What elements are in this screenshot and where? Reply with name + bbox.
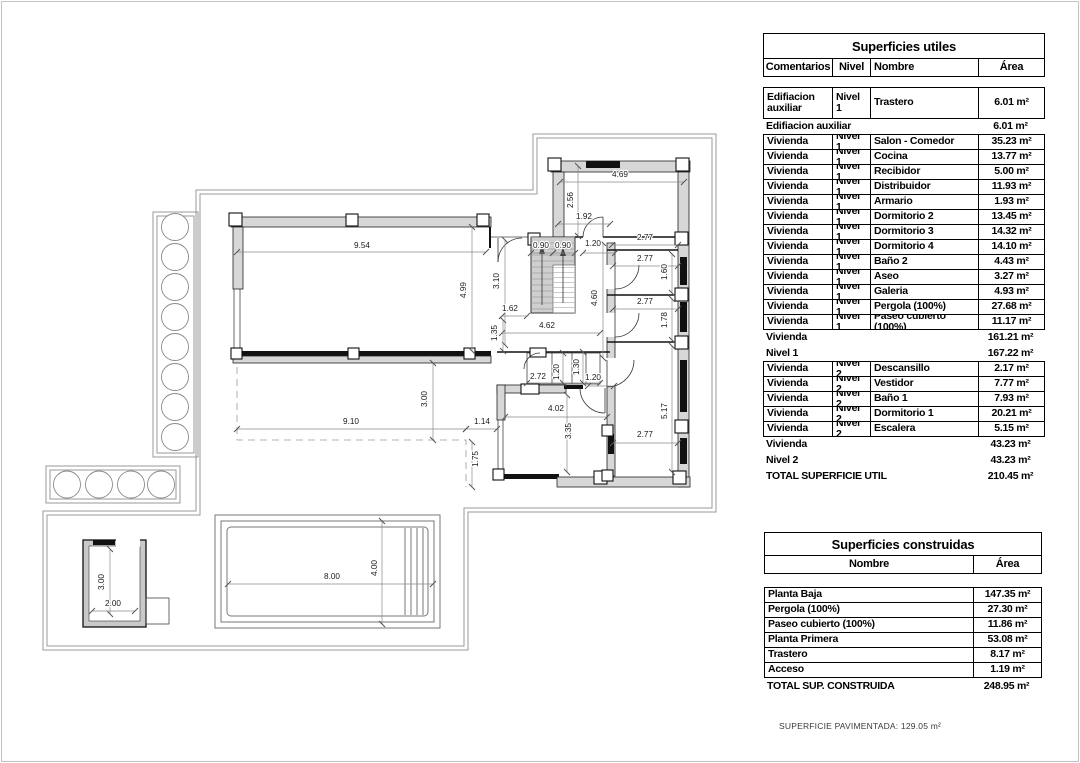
table-row: ViviendaNivel 1Baño 24.43 m² xyxy=(763,254,1045,270)
cell-nivel: Nivel 2 xyxy=(833,392,871,406)
cell-area: 13.77 m² xyxy=(979,150,1044,164)
cell-area: 53.08 m² xyxy=(974,633,1041,647)
dimension-label: 4.60 xyxy=(590,290,599,306)
cell-nombre: Salon - Comedor xyxy=(871,135,979,149)
cell-nombre: Pergola (100%) xyxy=(765,603,974,617)
table-row: TOTAL SUP. CONSTRUIDA248.95 m² xyxy=(764,678,1042,695)
cell-nombre: Dormitorio 3 xyxy=(871,225,979,239)
subtotal-label: Nivel 2 xyxy=(763,453,978,469)
table-row: ViviendaNivel 2Baño 17.93 m² xyxy=(763,391,1045,407)
cell-nivel: Nivel 1 xyxy=(833,150,871,164)
cell-area: 6.01 m² xyxy=(979,88,1044,118)
column-header: Nivel xyxy=(833,59,871,76)
table-row: ViviendaNivel 1Armario1.93 m² xyxy=(763,194,1045,210)
dimension-label: 2.77 xyxy=(637,233,653,242)
cell-nivel: Nivel 1 xyxy=(833,88,871,118)
superficies-utiles-table: Superficies utiles ComentariosNivelNombr… xyxy=(763,33,1045,485)
dimension-label: 4.02 xyxy=(548,404,564,413)
cell-comentarios: Vivienda xyxy=(764,377,833,391)
cell-nombre: Trastero xyxy=(871,88,979,118)
cell-area: 7.77 m² xyxy=(979,377,1044,391)
dimension-label: 2.56 xyxy=(566,192,575,208)
dimension-label: 1.14 xyxy=(474,417,490,426)
table-row: Nivel 1167.22 m² xyxy=(763,346,1045,362)
dimension-label: 0.90 xyxy=(555,241,571,250)
cell-area: 1.93 m² xyxy=(979,195,1044,209)
tree-row-south xyxy=(46,466,180,503)
dimension-label: 5.17 xyxy=(660,403,669,419)
cell-comentarios: Vivienda xyxy=(764,407,833,421)
table-row: ViviendaNivel 1Dormitorio 314.32 m² xyxy=(763,224,1045,240)
table-row: Paseo cubierto (100%)11.86 m² xyxy=(764,617,1042,633)
dimension-label: 1.62 xyxy=(502,304,518,313)
cell-nombre: Galeria xyxy=(871,285,979,299)
dimension-label: 3.00 xyxy=(97,574,106,590)
table-row: Edifiacion auxiliar6.01 m² xyxy=(763,119,1045,135)
cell-comentarios: Vivienda xyxy=(764,240,833,254)
table-row: ViviendaNivel 1Distribuidor11.93 m² xyxy=(763,179,1045,195)
table-row: ViviendaNivel 1Cocina13.77 m² xyxy=(763,149,1045,165)
table-row: ViviendaNivel 1Dormitorio 414.10 m² xyxy=(763,239,1045,255)
cell-area: 35.23 m² xyxy=(979,135,1044,149)
subtotal-area: 6.01 m² xyxy=(978,119,1043,135)
cell-nivel: Nivel 1 xyxy=(833,195,871,209)
subtotal-area: 43.23 m² xyxy=(978,453,1043,469)
table-row: Edifiacion auxiliarNivel 1Trastero6.01 m… xyxy=(763,87,1045,119)
dimension-label: 1.20 xyxy=(585,373,601,382)
table-row: ViviendaNivel 2Dormitorio 120.21 m² xyxy=(763,406,1045,422)
cell-comentarios: Vivienda xyxy=(764,150,833,164)
cell-area: 1.19 m² xyxy=(974,663,1041,677)
cell-nombre: Cocina xyxy=(871,150,979,164)
cell-comentarios: Vivienda xyxy=(764,315,833,329)
cell-comentarios: Vivienda xyxy=(764,270,833,284)
subtotal-area: 248.95 m² xyxy=(973,678,1040,695)
dimension-label: 2.77 xyxy=(637,430,653,439)
subtotal-label: TOTAL SUP. CONSTRUIDA xyxy=(764,678,973,695)
dimension-label: 4.69 xyxy=(612,170,628,179)
cell-area: 27.30 m² xyxy=(974,603,1041,617)
outbuilding xyxy=(83,539,169,627)
cell-nombre: Recibidor xyxy=(871,165,979,179)
cell-comentarios: Vivienda xyxy=(764,362,833,376)
cell-comentarios: Vivienda xyxy=(764,165,833,179)
cell-area: 4.43 m² xyxy=(979,255,1044,269)
table-row: ViviendaNivel 1Recibidor5.00 m² xyxy=(763,164,1045,180)
cell-area: 5.15 m² xyxy=(979,422,1044,436)
dimension-label: 1.75 xyxy=(471,451,480,467)
table-row: Acceso1.19 m² xyxy=(764,662,1042,678)
subtotal-area: 167.22 m² xyxy=(978,346,1043,362)
cell-comentarios: Vivienda xyxy=(764,392,833,406)
subtotal-label: Edifiacion auxiliar xyxy=(763,119,978,135)
cell-comentarios: Vivienda xyxy=(764,255,833,269)
cell-area: 4.93 m² xyxy=(979,285,1044,299)
cell-nombre: Descansillo xyxy=(871,362,979,376)
cell-nivel: Nivel 1 xyxy=(833,225,871,239)
column-header: Nombre xyxy=(765,556,974,573)
cell-area: 14.32 m² xyxy=(979,225,1044,239)
cell-comentarios: Vivienda xyxy=(764,180,833,194)
table-row: ViviendaNivel 1Galeria4.93 m² xyxy=(763,284,1045,300)
dimension-label: 0.90 xyxy=(533,241,549,250)
cell-nivel: Nivel 1 xyxy=(833,255,871,269)
cell-area: 11.86 m² xyxy=(974,618,1041,632)
cell-nivel: Nivel 2 xyxy=(833,377,871,391)
dimension-label: 3.00 xyxy=(420,391,429,407)
cell-nivel: Nivel 1 xyxy=(833,315,871,329)
table-row: Vivienda161.21 m² xyxy=(763,330,1045,346)
column-header: Área xyxy=(979,59,1044,76)
cell-nivel: Nivel 1 xyxy=(833,270,871,284)
cell-nombre: Aseo xyxy=(871,270,979,284)
cell-nivel: Nivel 1 xyxy=(833,180,871,194)
table-row: Vivienda43.23 m² xyxy=(763,437,1045,453)
dimension-label: 2.77 xyxy=(637,254,653,263)
dimension-label: 4.99 xyxy=(459,282,468,298)
dimension-label: 8.00 xyxy=(324,572,340,581)
dimension-label: 4.00 xyxy=(370,560,379,576)
dimension-label: 2.72 xyxy=(530,372,546,381)
dimension-label: 1.78 xyxy=(660,312,669,328)
cell-nombre: Trastero xyxy=(765,648,974,662)
cell-nombre: Distribuidor xyxy=(871,180,979,194)
cell-area: 8.17 m² xyxy=(974,648,1041,662)
table-row: Trastero8.17 m² xyxy=(764,647,1042,663)
table-row: ViviendaNivel 1Aseo3.27 m² xyxy=(763,269,1045,285)
table-row: ViviendaNivel 1Paseo cubierto (100%)11.1… xyxy=(763,314,1045,330)
dimension-label: 3.35 xyxy=(564,423,573,439)
cell-comentarios: Vivienda xyxy=(764,135,833,149)
subtotal-label: Vivienda xyxy=(763,330,978,346)
cell-nombre: Vestidor xyxy=(871,377,979,391)
cell-nombre: Baño 2 xyxy=(871,255,979,269)
cell-nombre: Dormitorio 4 xyxy=(871,240,979,254)
drawing-sheet: 9.544.993.104.692.561.920.900.901.202.77… xyxy=(0,0,1080,763)
subtotal-label: Nivel 1 xyxy=(763,346,978,362)
table-row: ViviendaNivel 1Pergola (100%)27.68 m² xyxy=(763,299,1045,315)
superficies-construidas-header: NombreÁrea xyxy=(764,555,1042,574)
cell-nombre: Planta Baja xyxy=(765,588,974,602)
cell-nivel: Nivel 1 xyxy=(833,300,871,314)
cell-nombre: Escalera xyxy=(871,422,979,436)
cell-area: 14.10 m² xyxy=(979,240,1044,254)
cell-nivel: Nivel 1 xyxy=(833,240,871,254)
cell-nombre: Acceso xyxy=(765,663,974,677)
superficies-utiles-header: ComentariosNivelNombreÁrea xyxy=(763,58,1045,77)
house-walls xyxy=(229,158,690,487)
cell-comentarios: Vivienda xyxy=(764,422,833,436)
cell-nombre: Paseo cubierto (100%) xyxy=(871,315,979,329)
dimension-label: 3.10 xyxy=(492,273,501,289)
dimension-label: 2.77 xyxy=(637,297,653,306)
table-row: ViviendaNivel 2Descansillo2.17 m² xyxy=(763,361,1045,377)
subtotal-label: Vivienda xyxy=(763,437,978,453)
cell-nivel: Nivel 1 xyxy=(833,135,871,149)
cell-area: 13.45 m² xyxy=(979,210,1044,224)
superficies-construidas-table: Superficies construidas NombreÁrea Plant… xyxy=(764,532,1042,695)
cell-comentarios: Vivienda xyxy=(764,195,833,209)
dimension-label: 1.35 xyxy=(490,325,499,341)
dimension-label: 9.54 xyxy=(354,241,370,250)
superficies-construidas-title: Superficies construidas xyxy=(764,532,1042,556)
superficies-construidas-rows: Planta Baja147.35 m²Pergola (100%)27.30 … xyxy=(764,587,1042,695)
cell-comentarios: Vivienda xyxy=(764,210,833,224)
dimension-label: 1.30 xyxy=(572,359,581,375)
subtotal-label: TOTAL SUPERFICIE UTIL xyxy=(763,469,978,485)
cell-area: 11.93 m² xyxy=(979,180,1044,194)
table-row: ViviendaNivel 2Vestidor7.77 m² xyxy=(763,376,1045,392)
cell-area: 7.93 m² xyxy=(979,392,1044,406)
subtotal-area: 161.21 m² xyxy=(978,330,1043,346)
table-row: ViviendaNivel 1Dormitorio 213.45 m² xyxy=(763,209,1045,225)
cell-area: 20.21 m² xyxy=(979,407,1044,421)
cell-nombre: Armario xyxy=(871,195,979,209)
dimension-label: 2.00 xyxy=(105,599,121,608)
pergola-dashed-outline xyxy=(237,367,466,487)
table-row: Pergola (100%)27.30 m² xyxy=(764,602,1042,618)
cell-nombre: Pergola (100%) xyxy=(871,300,979,314)
tree-row-west xyxy=(153,212,198,457)
cell-nombre: Baño 1 xyxy=(871,392,979,406)
column-header: Área xyxy=(974,556,1041,573)
dimension-label: 4.62 xyxy=(539,321,555,330)
dimension-label: 1.20 xyxy=(552,364,561,380)
cell-area: 27.68 m² xyxy=(979,300,1044,314)
cell-area: 3.27 m² xyxy=(979,270,1044,284)
cell-nivel: Nivel 2 xyxy=(833,407,871,421)
floor-plan-drawing: 9.544.993.104.692.561.920.900.901.202.77… xyxy=(0,0,755,763)
cell-nivel: Nivel 1 xyxy=(833,165,871,179)
cell-area: 11.17 m² xyxy=(979,315,1044,329)
cell-comentarios: Edifiacion auxiliar xyxy=(764,88,833,118)
cell-nivel: Nivel 2 xyxy=(833,422,871,436)
cell-nivel: Nivel 1 xyxy=(833,210,871,224)
superficies-utiles-rows: Edifiacion auxiliarNivel 1Trastero6.01 m… xyxy=(763,87,1045,485)
table-gap xyxy=(764,574,1042,588)
cell-area: 5.00 m² xyxy=(979,165,1044,179)
cell-nombre: Paseo cubierto (100%) xyxy=(765,618,974,632)
dimension-label: 9.10 xyxy=(343,417,359,426)
cell-area: 147.35 m² xyxy=(974,588,1041,602)
cell-nivel: Nivel 2 xyxy=(833,362,871,376)
dimension-label: 1.60 xyxy=(660,264,669,280)
table-row: Planta Primera53.08 m² xyxy=(764,632,1042,648)
table-row: ViviendaNivel 1Salon - Comedor35.23 m² xyxy=(763,134,1045,150)
subtotal-area: 43.23 m² xyxy=(978,437,1043,453)
table-row: ViviendaNivel 2Escalera5.15 m² xyxy=(763,421,1045,437)
paved-surface-note: SUPERFICIE PAVIMENTADA: 129.05 m² xyxy=(779,721,941,731)
cell-comentarios: Vivienda xyxy=(764,285,833,299)
cell-nombre: Dormitorio 1 xyxy=(871,407,979,421)
cell-comentarios: Vivienda xyxy=(764,300,833,314)
superficies-utiles-title: Superficies utiles xyxy=(763,33,1045,59)
table-row: Planta Baja147.35 m² xyxy=(764,587,1042,603)
column-header: Comentarios xyxy=(764,59,833,76)
column-header: Nombre xyxy=(871,59,979,76)
cell-nivel: Nivel 1 xyxy=(833,285,871,299)
table-row: TOTAL SUPERFICIE UTIL210.45 m² xyxy=(763,469,1045,485)
cell-nombre: Planta Primera xyxy=(765,633,974,647)
dimension-label: 1.20 xyxy=(585,239,601,248)
dimension-label: 1.92 xyxy=(576,212,592,221)
table-row: Nivel 243.23 m² xyxy=(763,453,1045,469)
cell-area: 2.17 m² xyxy=(979,362,1044,376)
cell-nombre: Dormitorio 2 xyxy=(871,210,979,224)
subtotal-area: 210.45 m² xyxy=(978,469,1043,485)
cell-comentarios: Vivienda xyxy=(764,225,833,239)
